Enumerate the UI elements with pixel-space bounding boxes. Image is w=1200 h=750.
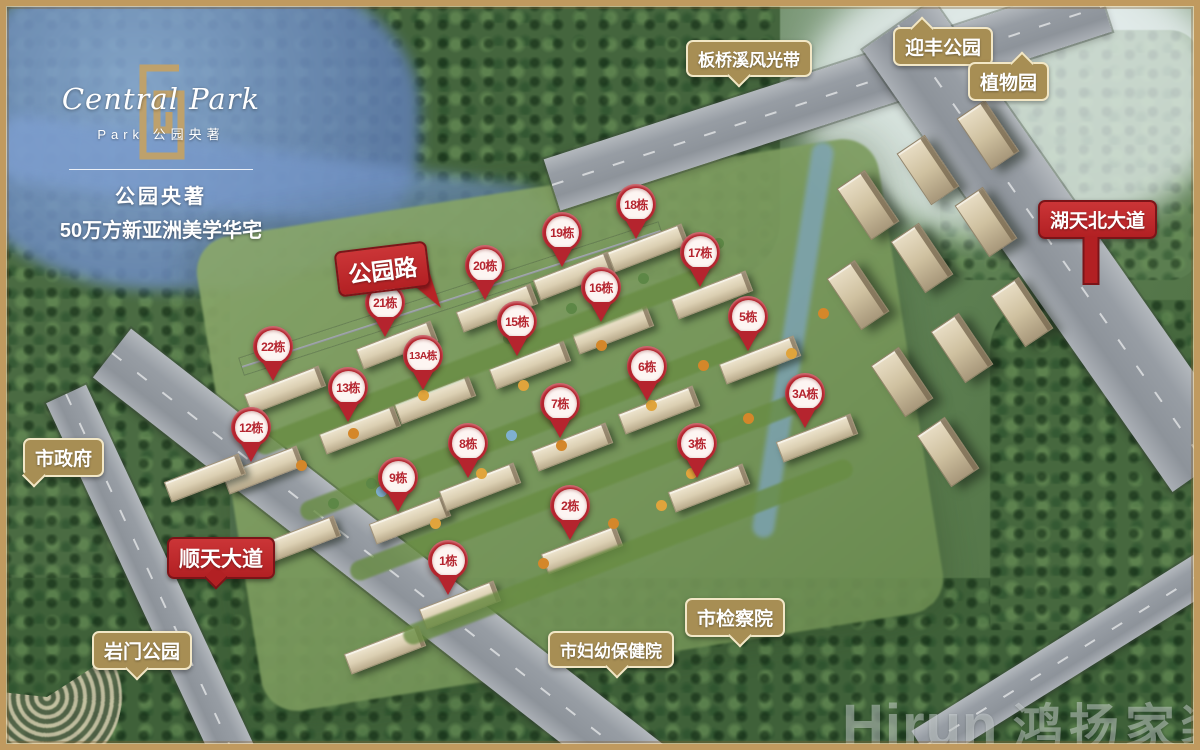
pin-tail-icon xyxy=(387,492,409,512)
pin-tail-icon xyxy=(337,402,359,422)
pin-tail-icon xyxy=(374,317,396,337)
pin-inner-circle: 3栋 xyxy=(681,427,714,460)
pin-label: 3A栋 xyxy=(792,385,818,402)
pin-label: 16栋 xyxy=(589,279,613,296)
building-pin[interactable]: 8栋 xyxy=(446,423,490,481)
pin-inner-circle: 15栋 xyxy=(501,305,534,338)
watermark-en: Hirun xyxy=(842,693,998,750)
place-label: 市检察院 xyxy=(685,598,785,637)
pin-head: 1栋 xyxy=(428,540,468,580)
pin-tail-icon xyxy=(474,280,496,300)
label-text: 公园路 xyxy=(347,254,419,288)
building-pin[interactable]: 18栋 xyxy=(614,184,658,242)
brand-divider xyxy=(69,169,253,170)
label-text: 市妇幼保健院 xyxy=(560,642,662,661)
label-text: 湖天北大道 xyxy=(1050,211,1145,232)
label-text: 迎丰公园 xyxy=(905,38,981,59)
watermark: Hirun 鸿扬家装 xyxy=(842,688,1200,750)
pin-label: 18栋 xyxy=(624,196,648,213)
brand-tagline-1: 公园央著 xyxy=(58,180,264,209)
pin-label: 7栋 xyxy=(551,395,569,412)
pin-head: 7栋 xyxy=(540,383,580,423)
pin-head: 5栋 xyxy=(728,296,768,336)
pin-label: 8栋 xyxy=(459,435,477,452)
pin-head: 13栋 xyxy=(328,367,368,407)
pin-tail-icon xyxy=(262,361,284,381)
pin-tail-icon xyxy=(686,458,708,478)
pin-inner-circle: 13A栋 xyxy=(407,339,440,372)
brand-logo-sub: Park 公园央著 xyxy=(58,124,264,143)
pin-head: 15栋 xyxy=(497,301,537,341)
pin-label: 9栋 xyxy=(389,469,407,486)
pin-inner-circle: 1栋 xyxy=(432,544,465,577)
pin-head: 8栋 xyxy=(448,423,488,463)
label-text: 市检察院 xyxy=(697,609,773,630)
road-label: 顺天大道 xyxy=(167,537,275,579)
pin-tail-icon xyxy=(549,418,571,438)
brand-logo-script: Central Park xyxy=(58,82,264,116)
site-aerial-map: 板桥溪风光带迎丰公园植物园市政府岩门公园市妇幼保健院市检察院公园路湖天北大道顺天… xyxy=(0,0,1200,750)
place-label: 市政府 xyxy=(23,438,104,477)
pin-inner-circle: 5栋 xyxy=(732,300,765,333)
building-pin[interactable]: 7栋 xyxy=(538,383,582,441)
pin-label: 17栋 xyxy=(688,244,712,261)
pin-inner-circle: 17栋 xyxy=(684,236,717,269)
building-pin[interactable]: 16栋 xyxy=(579,267,623,325)
label-text: 市政府 xyxy=(35,449,92,470)
label-text: 板桥溪风光带 xyxy=(698,51,800,70)
building-pin[interactable]: 19栋 xyxy=(540,212,584,270)
road-label: 湖天北大道 xyxy=(1038,200,1157,239)
pin-inner-circle: 20栋 xyxy=(469,249,502,282)
pin-label: 5栋 xyxy=(739,308,757,325)
pin-head: 18栋 xyxy=(616,184,656,224)
pin-inner-circle: 2栋 xyxy=(554,489,587,522)
pin-inner-circle: 16栋 xyxy=(585,271,618,304)
label-text: 顺天大道 xyxy=(179,548,263,571)
pin-label: 1栋 xyxy=(439,552,457,569)
pin-label: 20栋 xyxy=(473,257,497,274)
place-label: 岩门公园 xyxy=(92,631,192,670)
pin-head: 6栋 xyxy=(627,346,667,386)
pin-head: 2栋 xyxy=(550,485,590,525)
pin-tail-icon xyxy=(625,219,647,239)
building-pin[interactable]: 2栋 xyxy=(548,485,592,543)
pin-head: 22栋 xyxy=(253,326,293,366)
building-tower xyxy=(931,313,994,383)
pin-inner-circle: 19栋 xyxy=(546,216,579,249)
pin-inner-circle: 9栋 xyxy=(382,461,415,494)
pin-inner-circle: 18栋 xyxy=(620,188,653,221)
pin-label: 22栋 xyxy=(261,338,285,355)
pin-label: 12栋 xyxy=(239,419,263,436)
tree-dots xyxy=(0,0,7,7)
building-pin[interactable]: 17栋 xyxy=(678,232,722,290)
pin-label: 13A栋 xyxy=(409,348,437,363)
place-label: 市妇幼保健院 xyxy=(548,631,674,668)
pin-inner-circle: 13栋 xyxy=(332,371,365,404)
pin-head: 13A栋 xyxy=(403,335,443,375)
building-pin[interactable]: 9栋 xyxy=(376,457,420,515)
pin-tail-icon xyxy=(559,520,581,540)
place-label: 迎丰公园 xyxy=(893,27,993,66)
pin-tail-icon xyxy=(794,408,816,428)
pin-label: 19栋 xyxy=(550,224,574,241)
pin-tail-icon xyxy=(590,302,612,322)
pin-label: 6栋 xyxy=(638,358,656,375)
building-pin[interactable]: 5栋 xyxy=(726,296,770,354)
pin-tail-icon xyxy=(636,381,658,401)
pin-head: 3A栋 xyxy=(785,373,825,413)
building-pin[interactable]: 20栋 xyxy=(463,245,507,303)
pin-head: 9栋 xyxy=(378,457,418,497)
pin-tail-icon xyxy=(437,575,459,595)
pin-tail-icon xyxy=(240,442,262,462)
watermark-zh: 鸿扬家装 xyxy=(1013,700,1200,750)
building-pin[interactable]: 3A栋 xyxy=(783,373,827,431)
building-pin[interactable]: 15栋 xyxy=(495,301,539,359)
building-pin[interactable]: 22栋 xyxy=(251,326,295,384)
building-pin[interactable]: 12栋 xyxy=(229,407,273,465)
label-text: 岩门公园 xyxy=(104,642,180,663)
place-label: 植物园 xyxy=(968,62,1049,101)
building-pin[interactable]: 3栋 xyxy=(675,423,719,481)
pin-tail-icon xyxy=(412,370,434,390)
pin-tail-icon xyxy=(737,331,759,351)
signpost-stem xyxy=(1082,237,1099,285)
building-pin[interactable]: 13A栋 xyxy=(401,335,445,393)
pin-inner-circle: 7栋 xyxy=(544,387,577,420)
pin-label: 13栋 xyxy=(336,379,360,396)
place-label: 板桥溪风光带 xyxy=(686,40,812,77)
building-pin[interactable]: 6栋 xyxy=(625,346,669,404)
brand-block: Central Park Park 公园央著 公园央著 50万方新亚洲美学华宅 xyxy=(58,52,264,243)
pin-tail-icon xyxy=(457,458,479,478)
pin-label: 21栋 xyxy=(373,294,397,311)
label-text: 植物园 xyxy=(980,73,1037,94)
pin-inner-circle: 22栋 xyxy=(257,330,290,363)
pin-head: 20栋 xyxy=(465,245,505,285)
pin-head: 19栋 xyxy=(542,212,582,252)
pin-tail-icon xyxy=(551,247,573,267)
pin-inner-circle: 12栋 xyxy=(235,411,268,444)
pin-head: 12栋 xyxy=(231,407,271,447)
pin-label: 2栋 xyxy=(561,497,579,514)
pin-label: 3栋 xyxy=(688,435,706,452)
pin-head: 17栋 xyxy=(680,232,720,272)
brand-tagline-2: 50万方新亚洲美学华宅 xyxy=(58,214,264,243)
building-pin[interactable]: 1栋 xyxy=(426,540,470,598)
pin-inner-circle: 3A栋 xyxy=(789,377,822,410)
pin-head: 16栋 xyxy=(581,267,621,307)
building-pin[interactable]: 13栋 xyxy=(326,367,370,425)
pin-head: 3栋 xyxy=(677,423,717,463)
pin-tail-icon xyxy=(506,336,528,356)
pin-tail-icon xyxy=(689,267,711,287)
pin-label: 15栋 xyxy=(505,313,529,330)
pin-inner-circle: 6栋 xyxy=(631,350,664,383)
pin-inner-circle: 8栋 xyxy=(452,427,485,460)
